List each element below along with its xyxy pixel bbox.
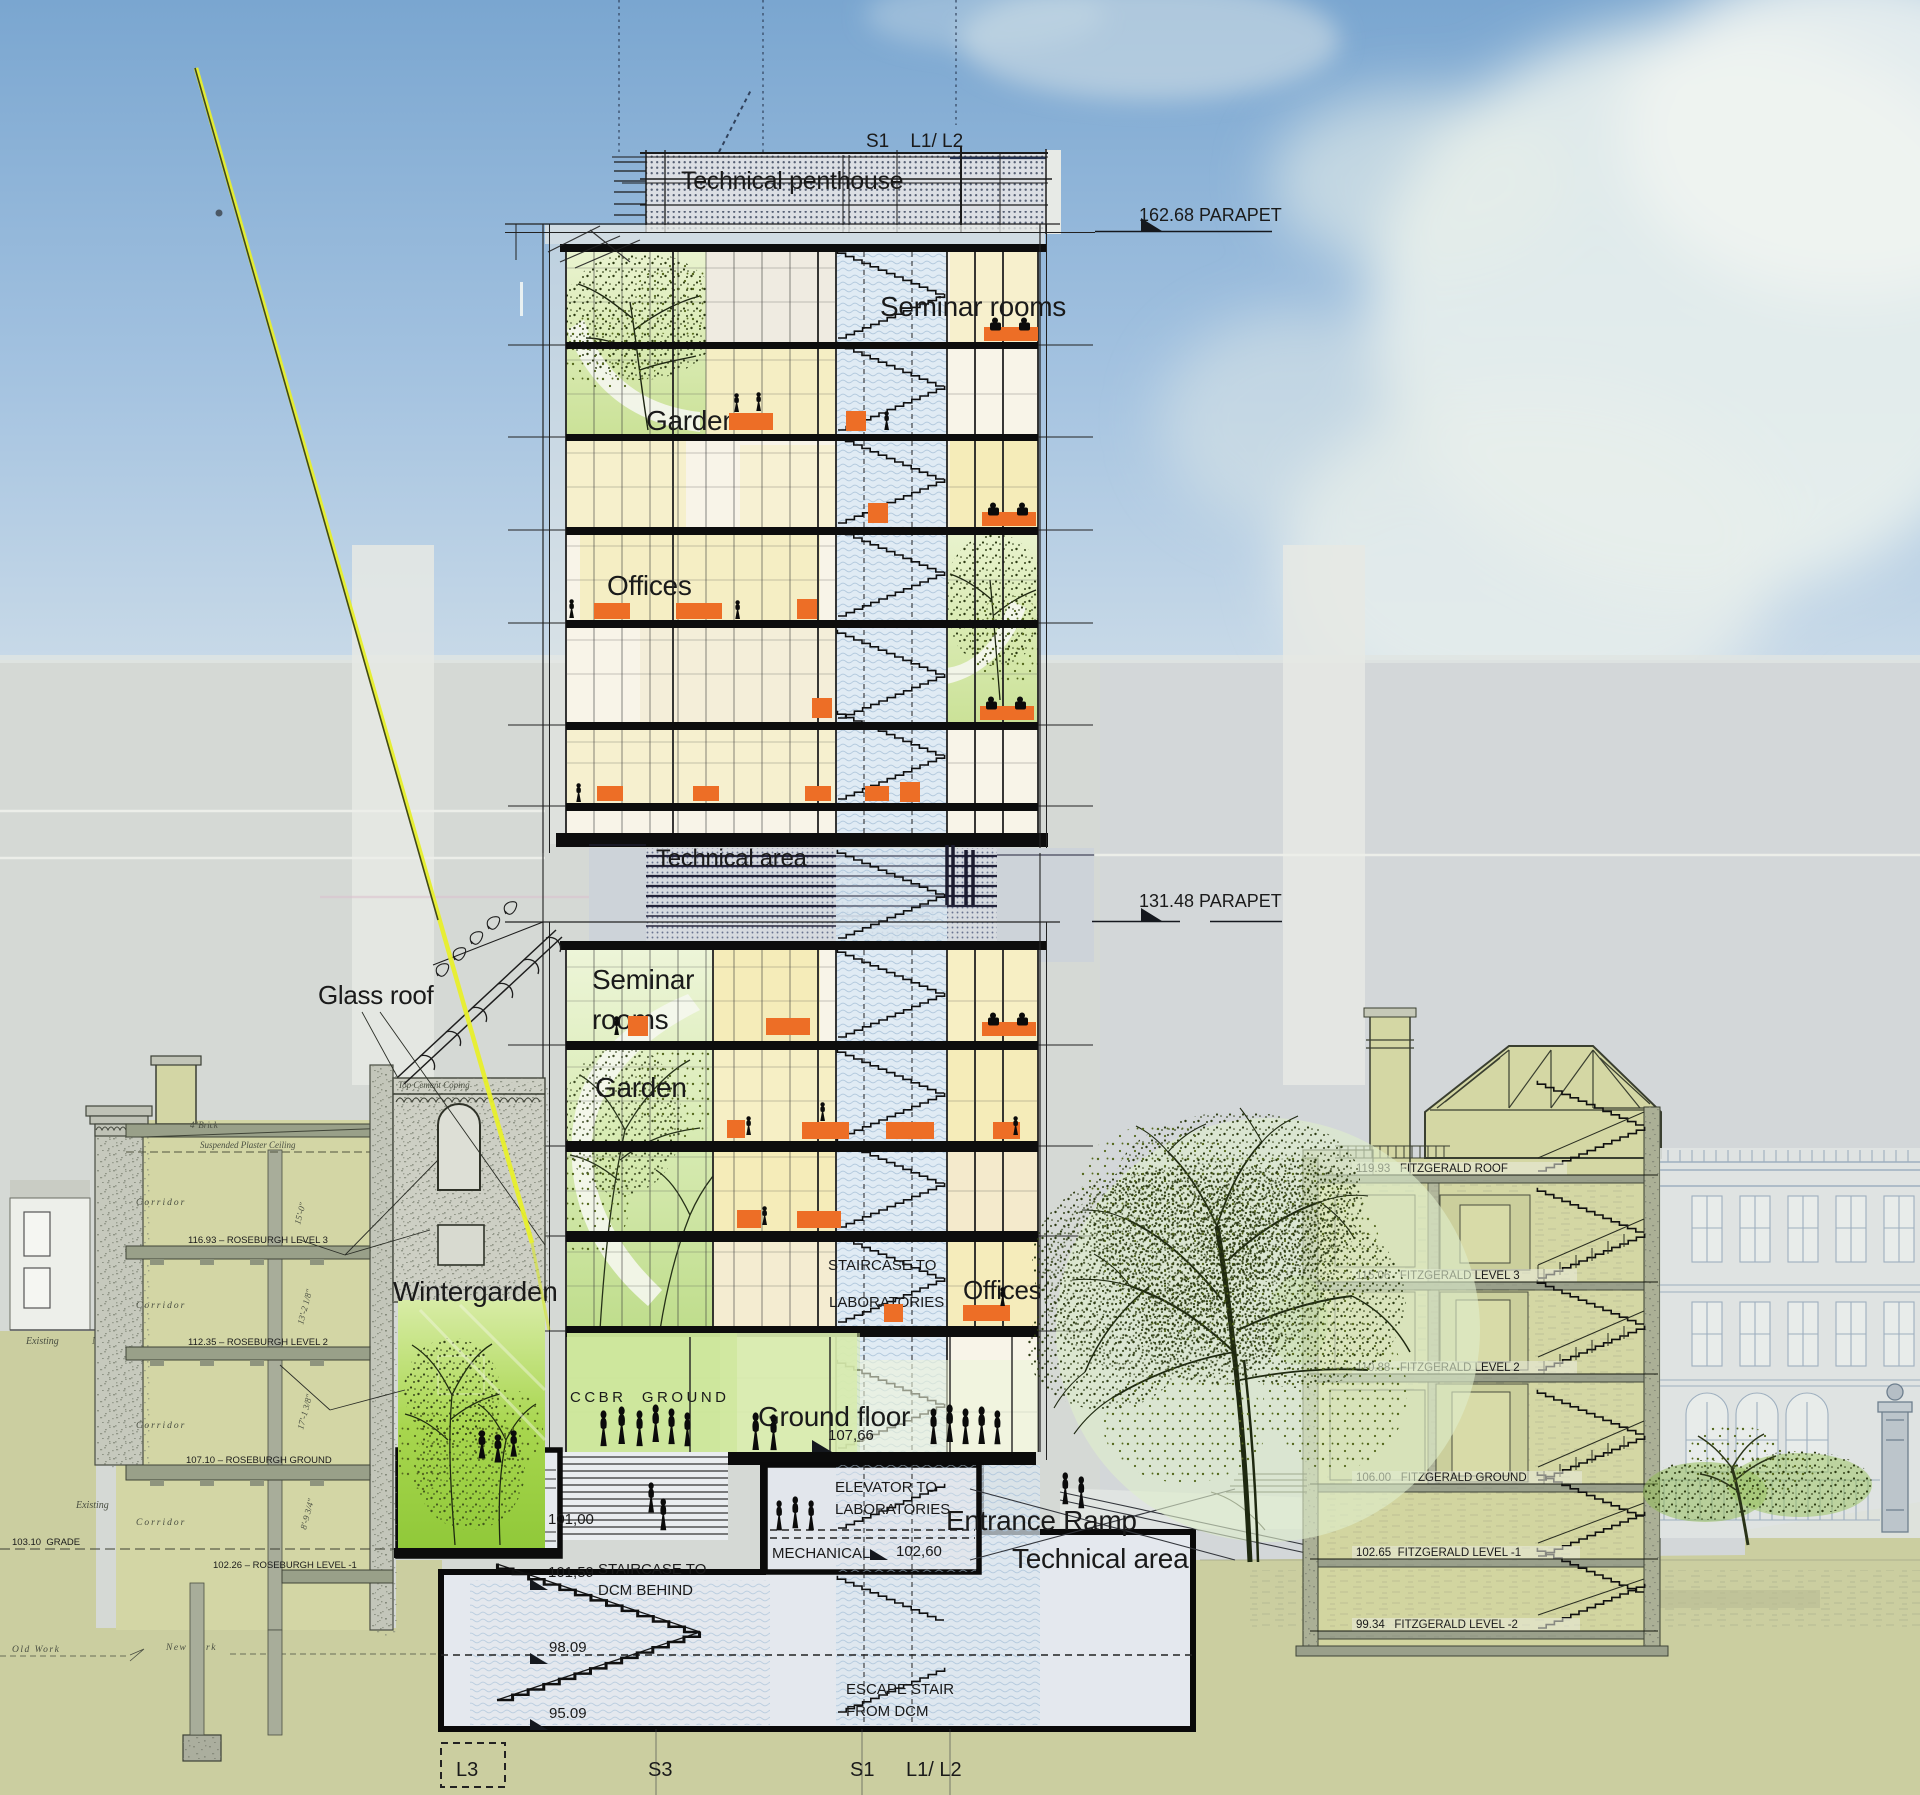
svg-text:103.10 GRADE: 103.10 GRADE <box>12 1537 80 1548</box>
svg-text:131.48 PARAPET: 131.48 PARAPET <box>1139 891 1282 911</box>
svg-text:Garden: Garden <box>595 1072 687 1103</box>
svg-text:Corridor: Corridor <box>136 1301 186 1311</box>
svg-text:Seminar: Seminar <box>592 964 694 995</box>
svg-text:101,59: 101,59 <box>548 1564 594 1581</box>
svg-text:Suspended Plaster Ceiling: Suspended Plaster Ceiling <box>200 1140 296 1150</box>
svg-text:98.09: 98.09 <box>549 1639 587 1656</box>
svg-text:107.10 ‒ ROSEBURGH GROUND: 107.10 ‒ ROSEBURGH GROUND <box>186 1455 332 1466</box>
svg-text:MECHANICAL: MECHANICAL <box>772 1545 870 1562</box>
svg-text:95.09: 95.09 <box>549 1705 587 1722</box>
svg-text:Garden: Garden <box>646 405 738 436</box>
svg-text:99.34 FITZGERALD LEVEL -2: 99.34 FITZGERALD LEVEL -2 <box>1356 1619 1518 1631</box>
svg-text:107,66: 107,66 <box>828 1427 874 1444</box>
svg-text:LABORATORIES: LABORATORIES <box>835 1501 950 1518</box>
svg-text:Offices: Offices <box>607 570 692 601</box>
svg-text:CCBR GROUND: CCBR GROUND <box>570 1389 730 1406</box>
svg-text:Corridor: Corridor <box>136 1421 186 1431</box>
svg-text:Seminar rooms: Seminar rooms <box>880 291 1066 322</box>
svg-text:L1/ L2: L1/ L2 <box>906 1759 962 1781</box>
svg-text:102.65 FITZGERALD LEVEL -1: 102.65 FITZGERALD LEVEL -1 <box>1356 1547 1521 1559</box>
svg-text:DCM BEHIND: DCM BEHIND <box>598 1582 693 1599</box>
svg-text:STAIRCASE TO: STAIRCASE TO <box>598 1561 706 1578</box>
svg-text:101,00: 101,00 <box>548 1511 594 1528</box>
svg-text:Glass roof: Glass roof <box>318 980 435 1010</box>
svg-text:Corridor: Corridor <box>136 1198 186 1208</box>
svg-text:L3: L3 <box>456 1759 478 1781</box>
svg-text:112.35 ‒ ROSEBURGH LEVEL 2: 112.35 ‒ ROSEBURGH LEVEL 2 <box>188 1337 328 1348</box>
svg-text:4"Brick: 4"Brick <box>190 1120 219 1130</box>
svg-text:Technical area: Technical area <box>1012 1543 1189 1574</box>
svg-text:S1 L1/ L2: S1 L1/ L2 <box>866 131 963 152</box>
svg-text:Existing: Existing <box>25 1336 59 1347</box>
svg-text:102.26 ‒ ROSEBURGH LEVEL -1: 102.26 ‒ ROSEBURGH LEVEL -1 <box>213 1560 357 1571</box>
svg-text:102,60: 102,60 <box>896 1543 942 1560</box>
svg-text:Technical area: Technical area <box>656 845 808 872</box>
svg-text:ELEVATOR TO: ELEVATOR TO <box>835 1479 937 1496</box>
svg-text:Corridor: Corridor <box>136 1518 186 1528</box>
svg-text:Wintergarden: Wintergarden <box>393 1276 557 1307</box>
svg-text:Entrance Ramp: Entrance Ramp <box>946 1505 1137 1536</box>
svg-text:Existing: Existing <box>75 1500 109 1511</box>
svg-text:162.68 PARAPET: 162.68 PARAPET <box>1139 205 1282 225</box>
svg-text:ESCAPE STAIR: ESCAPE STAIR <box>846 1681 954 1698</box>
svg-text:116.93 ‒ ROSEBURGH LEVEL 3: 116.93 ‒ ROSEBURGH LEVEL 3 <box>188 1235 328 1246</box>
svg-text:STAIRCASE TO: STAIRCASE TO <box>828 1257 936 1274</box>
svg-text:FROM DCM: FROM DCM <box>846 1703 929 1720</box>
svg-text:Old Work: Old Work <box>12 1645 60 1655</box>
svg-text:Technical penthouse: Technical penthouse <box>681 167 903 195</box>
svg-text:S3: S3 <box>648 1759 672 1781</box>
